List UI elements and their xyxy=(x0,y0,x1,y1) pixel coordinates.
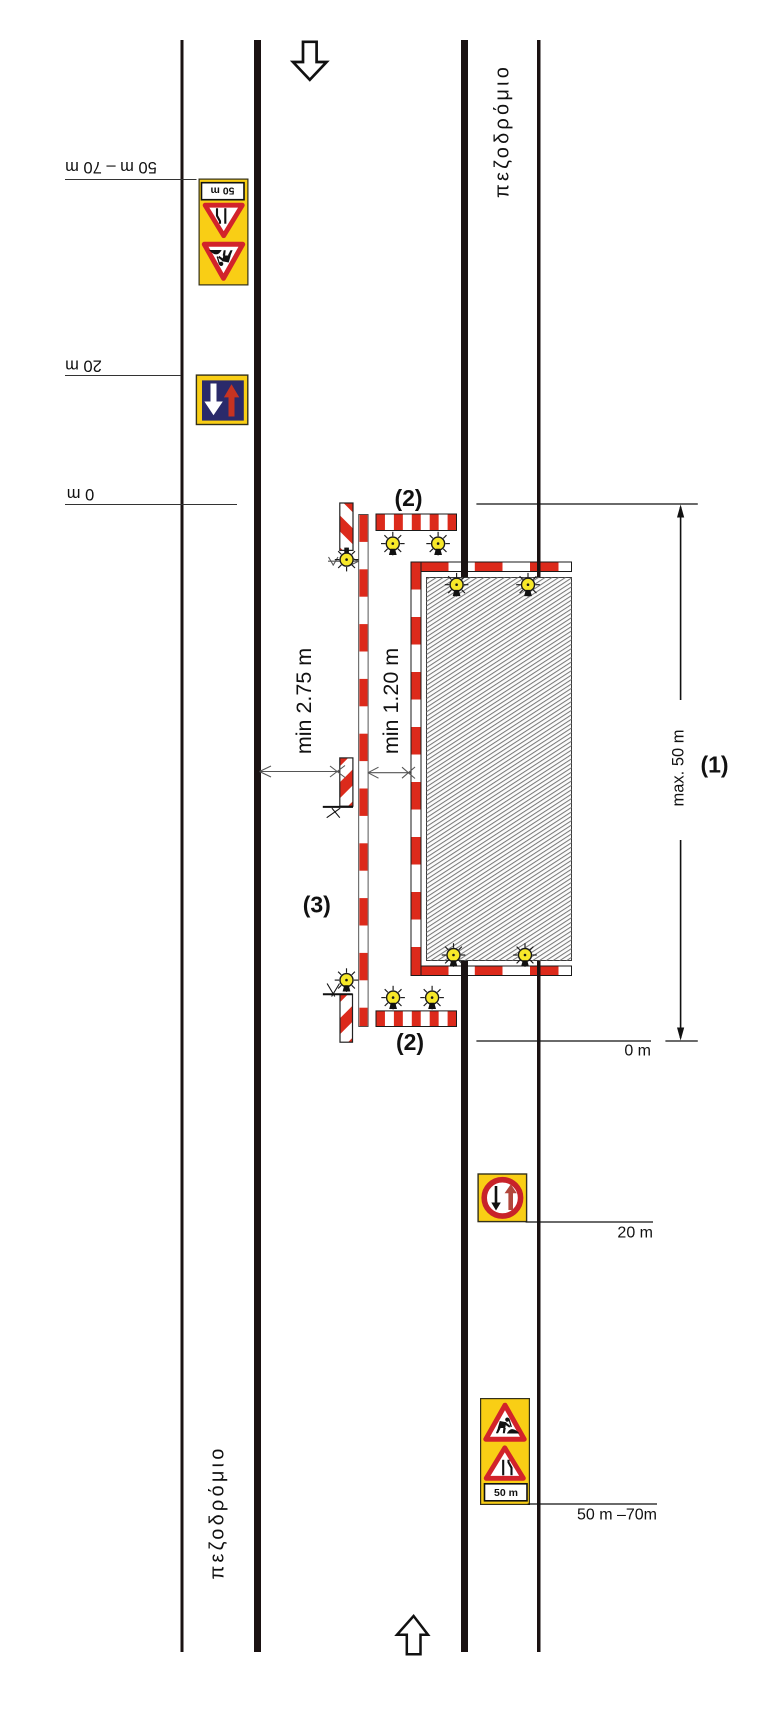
svg-text:50 m –70m: 50 m –70m xyxy=(577,1507,657,1524)
svg-text:min 1.20 m: min 1.20 m xyxy=(379,648,403,754)
svg-text:20 m: 20 m xyxy=(617,1225,653,1242)
svg-text:20 m: 20 m xyxy=(65,357,102,375)
svg-text:0 m: 0 m xyxy=(624,1043,651,1060)
svg-text:min 2.75 m: min 2.75 m xyxy=(292,648,316,754)
svg-text:(1): (1) xyxy=(700,752,728,778)
svg-text:(2): (2) xyxy=(396,1029,424,1055)
svg-text:πεζοδρόμιο: πεζοδρόμιο xyxy=(207,1445,229,1579)
svg-text:(2): (2) xyxy=(394,485,422,511)
svg-text:50 m – 70 m: 50 m – 70 m xyxy=(65,158,157,176)
svg-text:(3): (3) xyxy=(303,892,331,918)
svg-text:πεζοδρόμιο: πεζοδρόμιο xyxy=(492,64,514,198)
svg-text:max. 50 m: max. 50 m xyxy=(670,729,688,806)
svg-text:0 m: 0 m xyxy=(67,485,95,503)
